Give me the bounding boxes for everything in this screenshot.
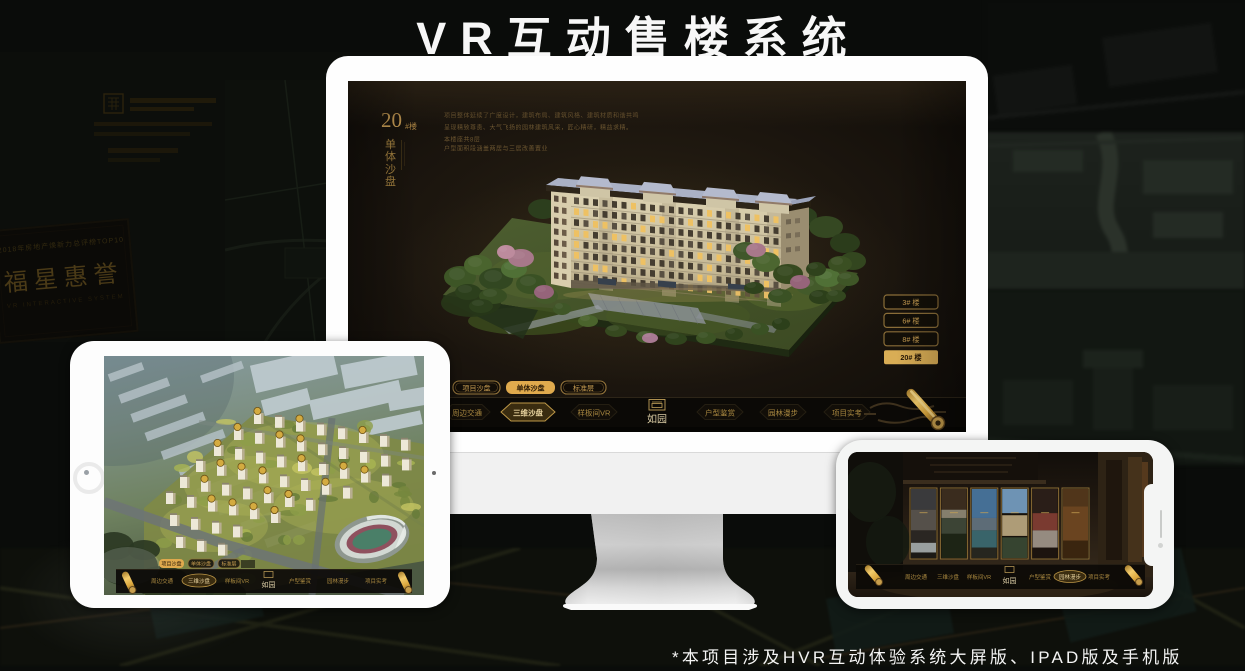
svg-text:样板间VR: 样板间VR	[225, 577, 249, 585]
svg-text:三维沙盘: 三维沙盘	[513, 408, 543, 418]
svg-text:户型面积段涵盖两居与三居改善置业: 户型面积段涵盖两居与三居改善置业	[444, 145, 548, 153]
svg-text:项目实考: 项目实考	[1088, 573, 1111, 581]
svg-text:园林漫步: 园林漫步	[768, 408, 798, 418]
svg-text:如园: 如园	[647, 413, 667, 426]
svg-text:本楼座共8层: 本楼座共8层	[444, 136, 480, 144]
svg-text:样板间VR: 样板间VR	[967, 573, 991, 581]
svg-text:如园: 如园	[262, 580, 276, 589]
svg-text:三维沙盘: 三维沙盘	[188, 577, 211, 585]
svg-text:周边交通: 周边交通	[452, 408, 482, 418]
svg-text:户型鉴赏: 户型鉴赏	[289, 577, 312, 585]
svg-text:园林漫步: 园林漫步	[327, 577, 350, 585]
svg-text:标准层: 标准层	[221, 561, 236, 568]
svg-text:周边交通: 周边交通	[151, 577, 174, 585]
svg-text:单体沙盘: 单体沙盘	[191, 561, 211, 568]
svg-text:项目实考: 项目实考	[832, 408, 862, 418]
svg-text:样板间VR: 样板间VR	[578, 408, 612, 418]
svg-text:项目沙盘: 项目沙盘	[463, 384, 491, 393]
svg-text:户型鉴赏: 户型鉴赏	[1029, 573, 1052, 581]
svg-text:项目实考: 项目实考	[365, 577, 388, 585]
svg-text:单体沙盘: 单体沙盘	[517, 384, 545, 393]
svg-text:如园: 如园	[1003, 576, 1017, 585]
svg-text:三维沙盘: 三维沙盘	[937, 573, 960, 581]
svg-text:户型鉴赏: 户型鉴赏	[705, 408, 735, 418]
svg-text:项目沙盘: 项目沙盘	[161, 561, 181, 568]
svg-text:标准层: 标准层	[573, 384, 594, 393]
svg-text:周边交通: 周边交通	[905, 573, 928, 581]
svg-text:园林漫步: 园林漫步	[1059, 573, 1082, 581]
